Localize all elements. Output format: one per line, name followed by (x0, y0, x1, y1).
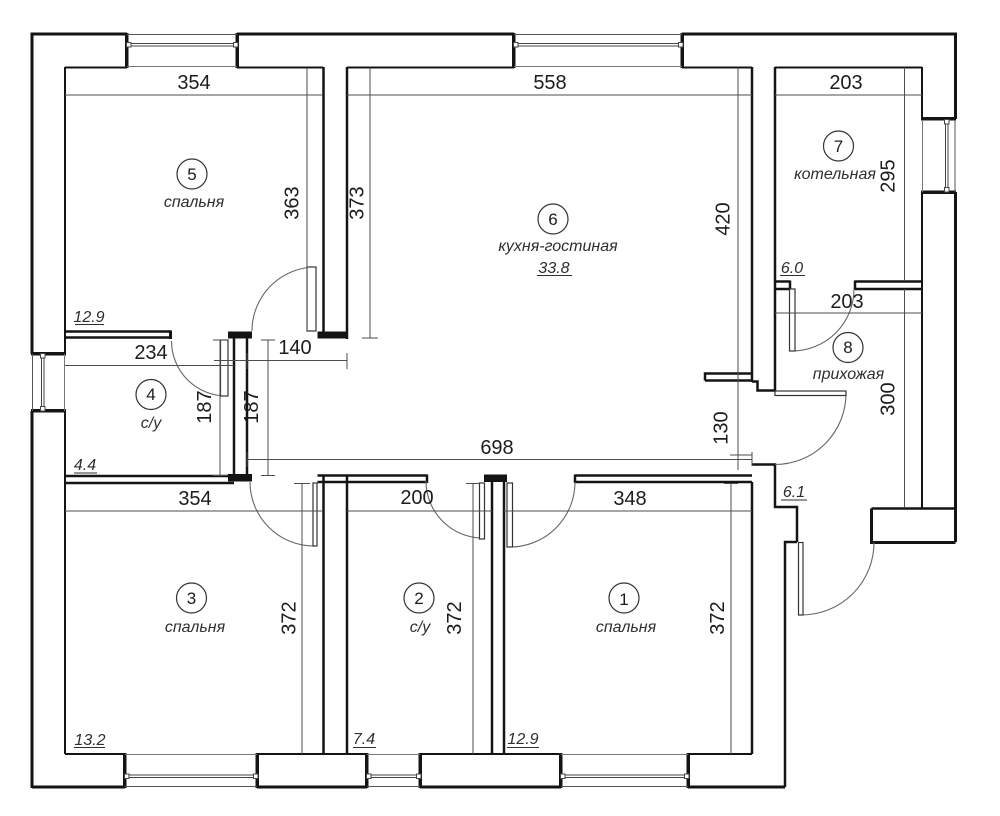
svg-text:спальня: спальня (165, 619, 226, 636)
svg-text:300: 300 (878, 382, 900, 415)
svg-text:698: 698 (480, 437, 513, 459)
svg-text:354: 354 (178, 488, 211, 510)
svg-text:спальня: спальня (596, 619, 657, 636)
svg-text:4.4: 4.4 (74, 457, 96, 474)
svg-text:3: 3 (187, 589, 196, 608)
svg-text:187: 187 (194, 390, 216, 423)
svg-text:2: 2 (414, 589, 423, 608)
svg-text:4: 4 (146, 385, 155, 404)
svg-text:прихожая: прихожая (813, 366, 885, 383)
svg-text:354: 354 (177, 72, 210, 94)
svg-text:кухня-гостиная: кухня-гостиная (498, 238, 618, 255)
svg-text:7.4: 7.4 (353, 731, 375, 748)
svg-text:363: 363 (282, 186, 304, 219)
svg-text:203: 203 (830, 291, 863, 313)
svg-text:13.2: 13.2 (74, 732, 105, 749)
svg-text:372: 372 (707, 601, 729, 634)
svg-text:372: 372 (279, 601, 301, 634)
svg-text:373: 373 (347, 186, 369, 219)
svg-text:130: 130 (711, 411, 733, 444)
svg-text:1: 1 (619, 590, 628, 609)
svg-text:295: 295 (878, 159, 900, 192)
svg-text:5: 5 (187, 165, 196, 184)
svg-text:8: 8 (843, 338, 852, 357)
svg-text:котельная: котельная (794, 166, 876, 183)
svg-text:с/у: с/у (410, 619, 431, 636)
svg-text:200: 200 (400, 487, 433, 509)
svg-text:203: 203 (829, 72, 862, 94)
svg-text:12.9: 12.9 (507, 731, 538, 748)
svg-text:348: 348 (613, 488, 646, 510)
svg-text:6.1: 6.1 (783, 484, 805, 501)
svg-text:6.0: 6.0 (781, 260, 803, 277)
svg-text:140: 140 (278, 337, 311, 359)
svg-text:6: 6 (548, 210, 557, 229)
svg-text:187: 187 (241, 390, 263, 423)
svg-text:420: 420 (713, 202, 735, 235)
svg-text:с/у: с/у (141, 415, 162, 432)
svg-text:234: 234 (134, 342, 167, 364)
svg-text:спальня: спальня (164, 194, 225, 211)
svg-text:7: 7 (834, 137, 843, 156)
svg-text:33.8: 33.8 (538, 260, 569, 277)
svg-text:12.9: 12.9 (73, 309, 104, 326)
svg-text:372: 372 (444, 601, 466, 634)
svg-text:558: 558 (533, 72, 566, 94)
